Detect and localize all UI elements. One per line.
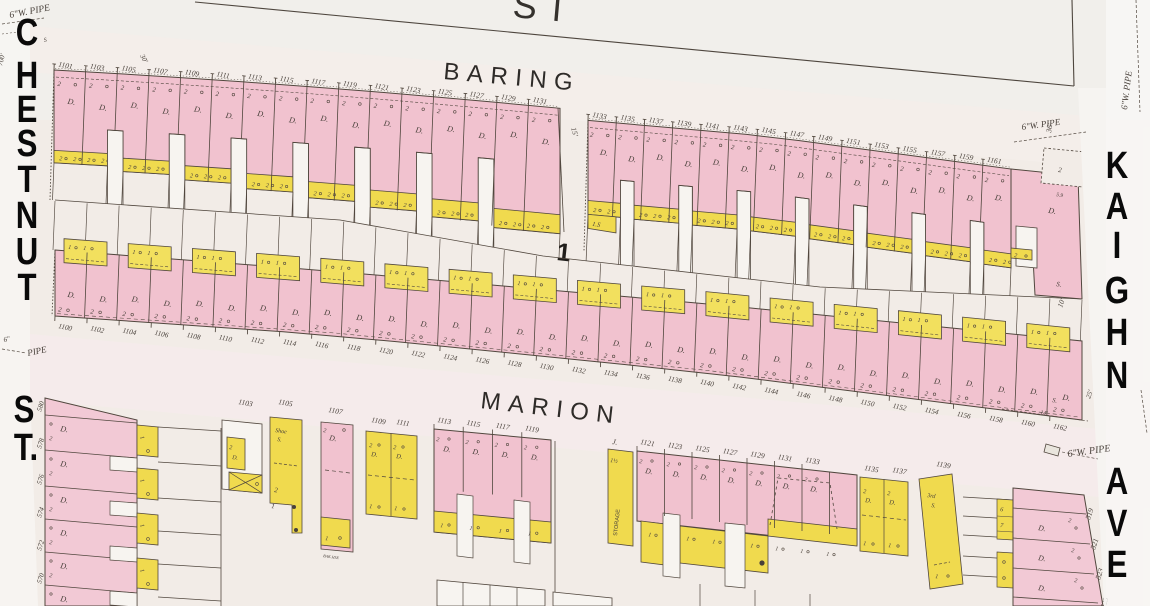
svg-text:D.: D. xyxy=(59,424,69,434)
svg-text:D.: D. xyxy=(477,131,487,141)
svg-text:D.: D. xyxy=(515,327,525,337)
svg-text:D.: D. xyxy=(445,124,455,134)
svg-text:D.: D. xyxy=(739,164,749,174)
svg-text:D.: D. xyxy=(319,113,329,123)
svg-text:D.: D. xyxy=(59,528,69,538)
svg-text:D.: D. xyxy=(781,481,791,491)
svg-text:D.: D. xyxy=(1037,523,1047,533)
svg-text:D.: D. xyxy=(993,193,1003,203)
svg-text:H: H xyxy=(1106,312,1129,354)
svg-text:D.: D. xyxy=(740,352,750,362)
svg-text:D.: D. xyxy=(414,125,424,135)
svg-text:D.: D. xyxy=(655,152,665,162)
svg-text:D.: D. xyxy=(880,178,890,188)
svg-text:D.: D. xyxy=(768,162,778,172)
svg-text:D.: D. xyxy=(130,294,140,304)
svg-text:D.: D. xyxy=(997,384,1007,394)
svg-text:D.: D. xyxy=(59,594,69,604)
svg-text:D.: D. xyxy=(937,185,947,195)
svg-text:D.: D. xyxy=(162,298,172,308)
svg-text:D.: D. xyxy=(382,118,392,128)
svg-text:D.: D. xyxy=(442,444,452,454)
svg-text:D.: D. xyxy=(824,170,834,180)
svg-text:A: A xyxy=(1106,461,1129,503)
svg-text:D.: D. xyxy=(965,193,975,203)
svg-text:D.: D. xyxy=(726,475,736,485)
svg-text:D.: D. xyxy=(287,115,297,125)
svg-text:N: N xyxy=(1106,355,1129,397)
svg-text:D.: D. xyxy=(59,495,69,505)
svg-text:D.: D. xyxy=(59,459,69,469)
svg-text:D.: D. xyxy=(676,345,686,355)
svg-text:G: G xyxy=(1105,270,1129,312)
svg-text:D.: D. xyxy=(909,185,919,195)
svg-text:D.: D. xyxy=(98,102,108,112)
svg-text:D.: D. xyxy=(323,308,333,318)
svg-text:S.: S. xyxy=(931,503,936,510)
svg-text:D.: D. xyxy=(1037,583,1047,593)
svg-text:D.: D. xyxy=(671,469,681,479)
svg-text:D.: D. xyxy=(627,154,637,164)
svg-text:D.: D. xyxy=(868,368,878,378)
svg-text:K: K xyxy=(1106,145,1129,187)
svg-text:D.: D. xyxy=(509,130,519,140)
svg-text:D.: D. xyxy=(226,303,236,313)
svg-text:D.: D. xyxy=(224,111,234,121)
svg-text:D.: D. xyxy=(66,97,76,107)
svg-text:D.: D. xyxy=(500,449,510,459)
svg-text:D.: D. xyxy=(547,332,557,342)
svg-text:D.: D. xyxy=(419,319,429,329)
svg-text:D.: D. xyxy=(804,360,814,370)
svg-text:D.: D. xyxy=(796,170,806,180)
svg-text:D.: D. xyxy=(370,451,379,459)
svg-text:D.: D. xyxy=(964,378,974,388)
svg-text:D.: D. xyxy=(59,561,69,571)
svg-text:D.: D. xyxy=(483,325,493,335)
svg-text:D.: D. xyxy=(708,346,718,356)
svg-text:I: I xyxy=(1113,225,1122,267)
svg-text:D.: D. xyxy=(683,159,693,169)
svg-text:D.: D. xyxy=(451,320,461,330)
svg-text:D.: D. xyxy=(328,433,338,443)
svg-text:D.: D. xyxy=(1061,392,1071,402)
svg-text:V: V xyxy=(1107,503,1128,545)
svg-text:D.: D. xyxy=(161,106,171,116)
svg-text:D.: D. xyxy=(66,290,76,300)
svg-text:D.: D. xyxy=(194,299,204,309)
svg-text:D.: D. xyxy=(395,453,404,461)
svg-text:D.: D. xyxy=(351,120,361,130)
svg-text:E: E xyxy=(1107,544,1128,586)
svg-text:T: T xyxy=(544,0,569,30)
svg-text:5.9: 5.9 xyxy=(1056,192,1064,199)
svg-text:T: T xyxy=(17,267,36,309)
svg-text:D.: D. xyxy=(598,147,608,157)
svg-text:D.: D. xyxy=(98,294,108,304)
svg-text:S: S xyxy=(14,389,35,431)
svg-text:D.: D. xyxy=(754,478,764,488)
svg-text:D.: D. xyxy=(231,455,239,462)
svg-text:D.: D. xyxy=(258,303,268,313)
svg-text:D.: D. xyxy=(711,157,721,167)
svg-text:D.: D. xyxy=(1047,206,1057,216)
svg-text:S.: S. xyxy=(277,437,282,444)
svg-text:D.: D. xyxy=(471,447,481,457)
svg-text:T.: T. xyxy=(14,427,38,469)
svg-text:D.: D. xyxy=(932,376,942,386)
svg-text:D.: D. xyxy=(888,499,897,507)
svg-text:C: C xyxy=(16,12,39,54)
svg-text:D.: D. xyxy=(852,178,862,188)
svg-text:D.: D. xyxy=(256,109,266,119)
svg-text:D.: D. xyxy=(192,104,202,114)
svg-text:D.: D. xyxy=(836,362,846,372)
svg-text:D.: D. xyxy=(291,307,301,317)
svg-text:D.: D. xyxy=(579,333,589,343)
svg-text:D.: D. xyxy=(387,314,397,324)
svg-text:D.: D. xyxy=(129,100,139,110)
svg-text:D.: D. xyxy=(1037,553,1047,563)
svg-text:D.: D. xyxy=(699,472,709,482)
svg-text:D.: D. xyxy=(529,452,539,462)
svg-text:D.: D. xyxy=(809,484,819,494)
svg-text:D.: D. xyxy=(864,497,873,505)
svg-text:D.: D. xyxy=(611,338,621,348)
svg-text:D.: D. xyxy=(772,354,782,364)
svg-text:A: A xyxy=(1106,186,1129,228)
svg-text:D.: D. xyxy=(540,137,550,147)
svg-text:D.: D. xyxy=(644,466,654,476)
svg-text:D.: D. xyxy=(1029,386,1039,396)
svg-text:D.: D. xyxy=(900,370,910,380)
svg-text:D.: D. xyxy=(644,339,654,349)
svg-text:1½: 1½ xyxy=(610,457,619,465)
svg-text:D.: D. xyxy=(355,313,365,323)
